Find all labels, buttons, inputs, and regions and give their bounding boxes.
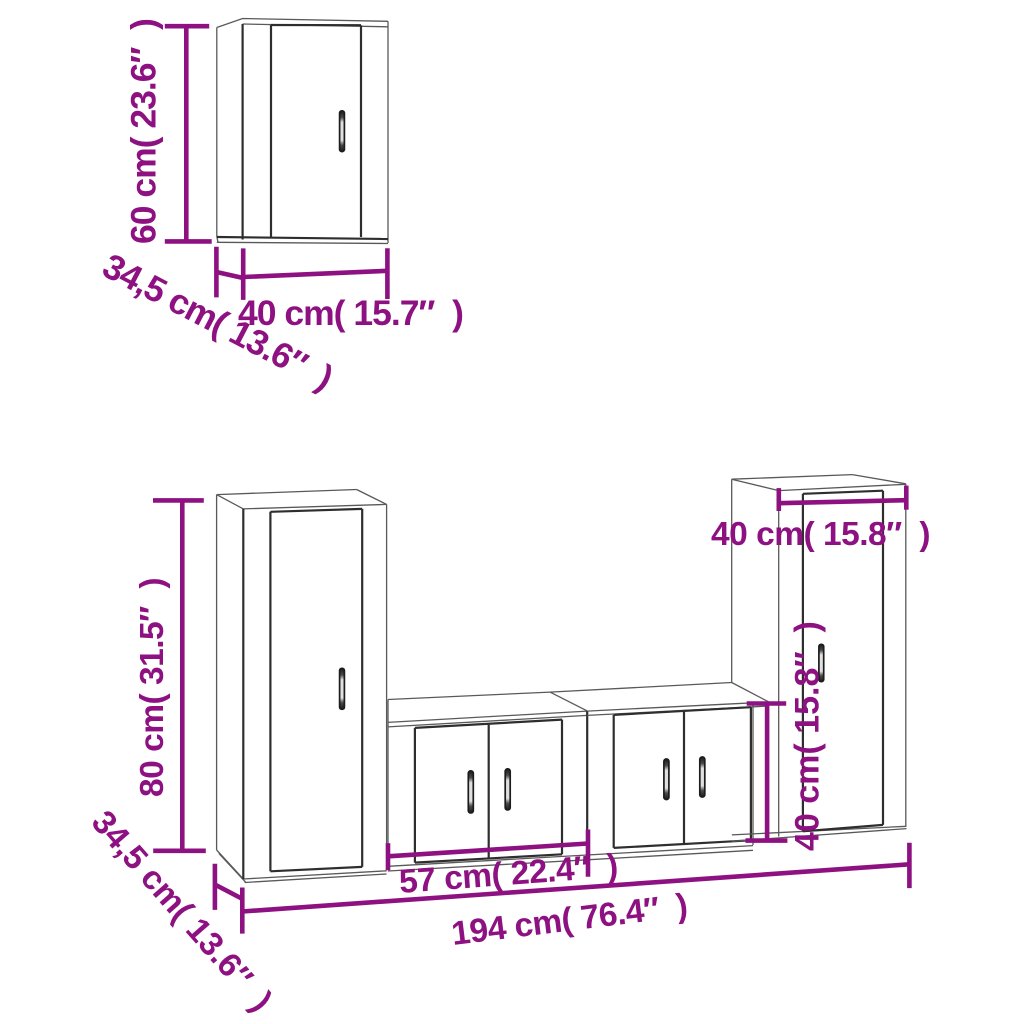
svg-text:80 cm( 31.5″ ): 80 cm( 31.5″ ): [134, 578, 171, 797]
svg-text:194 cm( 76.4″ ): 194 cm( 76.4″ ): [449, 887, 689, 953]
svg-text:40 cm( 15.7″ ): 40 cm( 15.7″ ): [238, 293, 463, 333]
svg-text:60 cm( 23.6″ ): 60 cm( 23.6″ ): [124, 19, 164, 244]
svg-text:40 cm( 15.8″ ): 40 cm( 15.8″ ): [711, 516, 930, 553]
svg-text:40 cm( 15.8″ ): 40 cm( 15.8″ ): [789, 621, 827, 851]
